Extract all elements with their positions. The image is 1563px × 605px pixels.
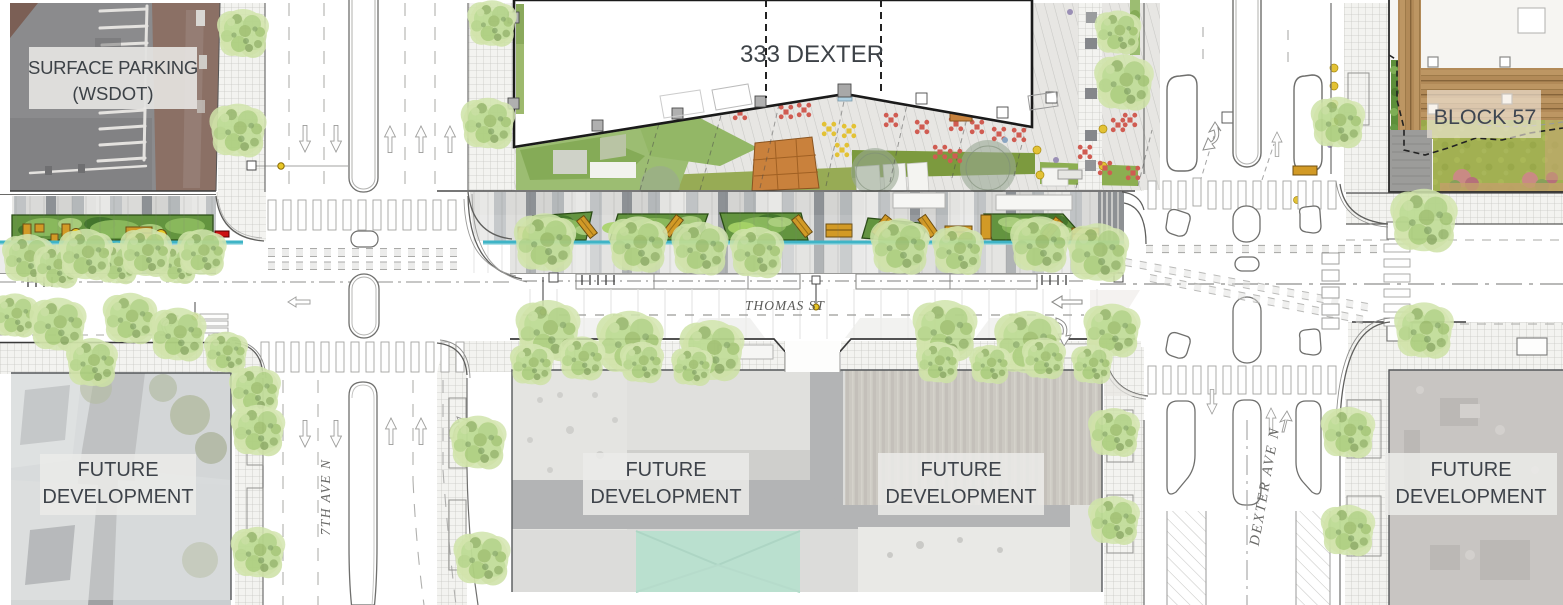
svg-text:7TH AVE N: 7TH AVE N <box>318 458 333 535</box>
svg-text:BLOCK 57: BLOCK 57 <box>1434 105 1537 129</box>
svg-text:FUTURE: FUTURE <box>625 459 706 481</box>
svg-text:(WSDOT): (WSDOT) <box>72 83 153 104</box>
svg-text:FUTURE: FUTURE <box>920 459 1001 481</box>
svg-text:THOMAS ST: THOMAS ST <box>745 298 825 313</box>
svg-text:DEVELOPMENT: DEVELOPMENT <box>590 486 741 508</box>
svg-text:FUTURE: FUTURE <box>1430 459 1511 481</box>
svg-text:SURFACE PARKING: SURFACE PARKING <box>28 57 198 78</box>
svg-text:DEVELOPMENT: DEVELOPMENT <box>1395 486 1546 508</box>
svg-text:FUTURE: FUTURE <box>77 459 158 481</box>
svg-text:333 DEXTER: 333 DEXTER <box>740 41 884 68</box>
svg-text:DEVELOPMENT: DEVELOPMENT <box>885 486 1036 508</box>
svg-text:DEVELOPMENT: DEVELOPMENT <box>42 486 193 508</box>
